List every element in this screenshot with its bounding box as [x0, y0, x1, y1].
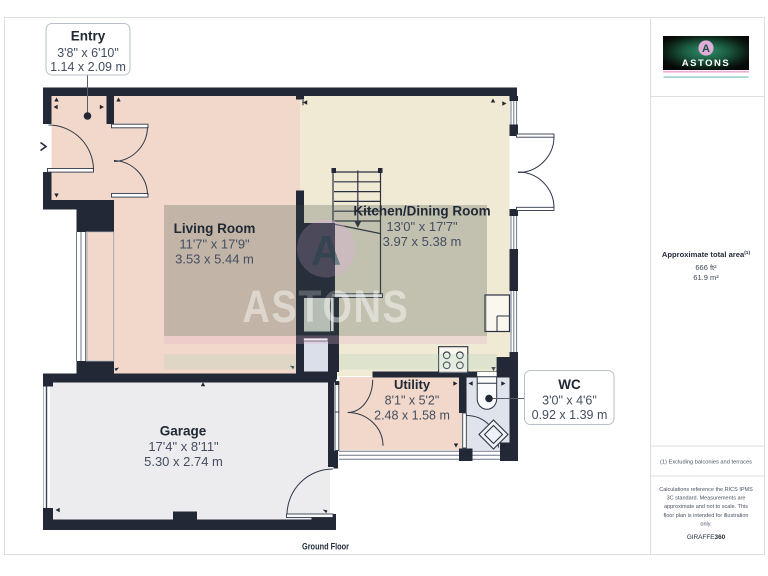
svg-text:WC: WC — [558, 377, 581, 392]
svg-text:3.53 x 5.44 m: 3.53 x 5.44 m — [175, 252, 254, 267]
svg-text:Utility: Utility — [394, 377, 431, 392]
svg-text:13'0" x 17'7": 13'0" x 17'7" — [386, 219, 458, 234]
svg-text:Ground Floor: Ground Floor — [302, 542, 350, 552]
svg-text:Approximate total area(1): Approximate total area(1) — [662, 250, 751, 259]
svg-text:Garage: Garage — [160, 424, 207, 439]
svg-text:3'8" x 6'10": 3'8" x 6'10" — [57, 46, 119, 60]
svg-text:only.: only. — [700, 521, 712, 527]
svg-text:11'7" x 17'9": 11'7" x 17'9" — [179, 237, 250, 252]
svg-text:A: A — [702, 43, 710, 55]
svg-text:3C standard. Measurements are: 3C standard. Measurements are — [667, 496, 746, 502]
svg-text:Kitchen/Dining Room: Kitchen/Dining Room — [353, 204, 490, 219]
svg-text:Calculations reference the RIC: Calculations reference the RICS IPMS — [659, 487, 753, 493]
svg-text:61.9 m²: 61.9 m² — [693, 273, 719, 282]
svg-text:approximate and not to scale.: approximate and not to scale. This — [664, 504, 748, 510]
svg-text:floor plan is intended for ill: floor plan is intended for illustration — [664, 513, 749, 519]
svg-text:5.30 x 2.74 m: 5.30 x 2.74 m — [144, 454, 223, 469]
svg-text:Living Room: Living Room — [174, 221, 256, 236]
svg-text:GIRAFFE360: GIRAFFE360 — [687, 534, 726, 541]
svg-text:3.97 x 5.38 m: 3.97 x 5.38 m — [383, 234, 462, 249]
svg-text:0.92 x 1.39 m: 0.92 x 1.39 m — [532, 408, 608, 422]
svg-text:ASTONS: ASTONS — [682, 58, 730, 69]
svg-text:17'4" x 8'11": 17'4" x 8'11" — [148, 439, 219, 454]
svg-text:2.48 x 1.58 m: 2.48 x 1.58 m — [374, 409, 450, 423]
svg-text:1.14 x 2.09 m: 1.14 x 2.09 m — [50, 60, 126, 74]
svg-text:Entry: Entry — [71, 29, 106, 44]
svg-text:666 ft²: 666 ft² — [695, 263, 717, 272]
svg-text:(1) Excluding balconies and te: (1) Excluding balconies and terraces — [660, 460, 752, 466]
svg-text:3'0" x 4'6": 3'0" x 4'6" — [542, 394, 597, 408]
svg-text:8'1" x 5'2": 8'1" x 5'2" — [385, 394, 440, 408]
